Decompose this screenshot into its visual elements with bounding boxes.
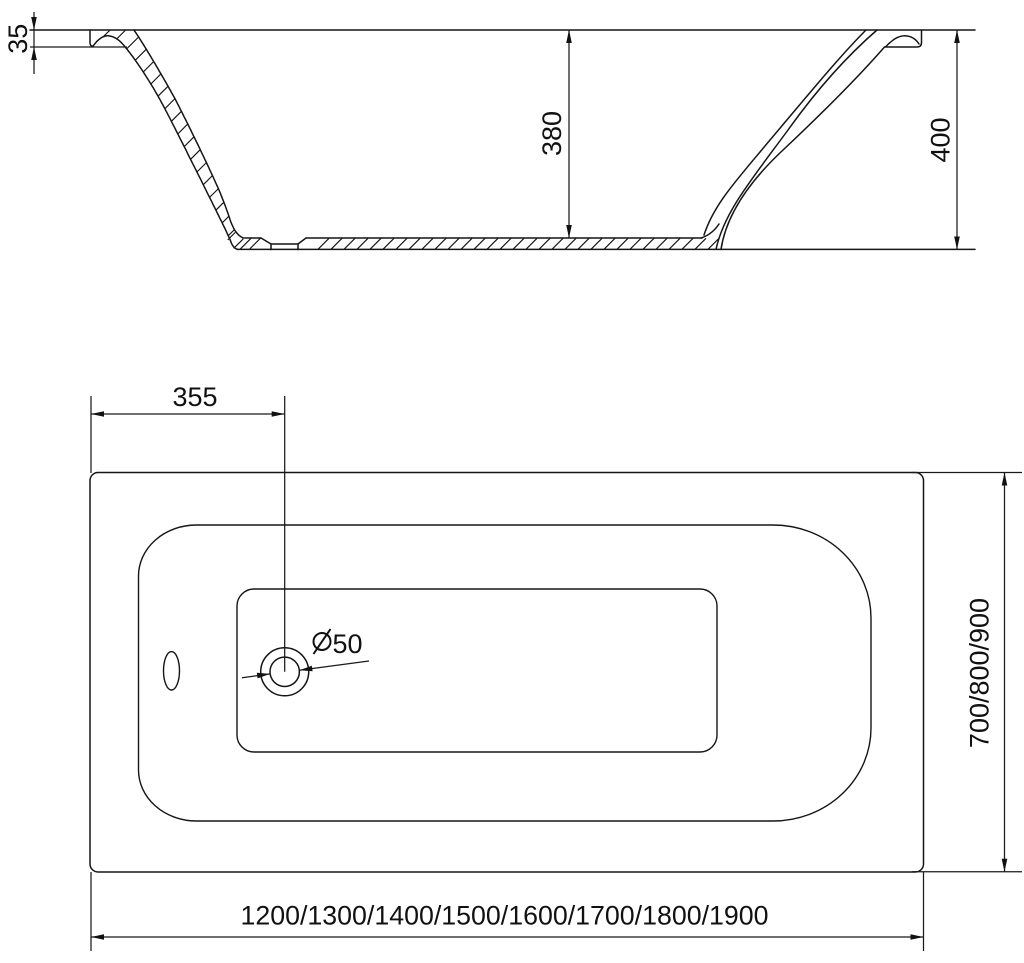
svg-text:380: 380 — [537, 111, 567, 156]
svg-text:400: 400 — [926, 117, 956, 162]
svg-text:355: 355 — [172, 382, 217, 412]
svg-text:35: 35 — [3, 24, 33, 54]
svg-text:50: 50 — [333, 629, 363, 659]
svg-text:1200/1300/1400/1500/1600/1700/: 1200/1300/1400/1500/1600/1700/1800/1900 — [240, 900, 768, 930]
svg-text:700/800/900: 700/800/900 — [965, 598, 995, 748]
